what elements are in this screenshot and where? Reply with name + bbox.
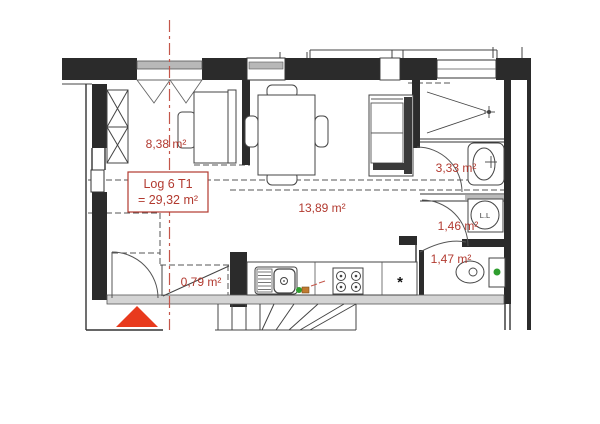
window-2-glazing: [249, 62, 283, 69]
room-label-laundry: 1,46 m²: [438, 219, 479, 233]
casement-swing-left: [137, 80, 170, 103]
sofa-back: [404, 97, 412, 174]
sink-drainer: [257, 269, 272, 292]
tap-fitting: [302, 287, 309, 293]
chair-right: [315, 116, 328, 147]
kitchen: *: [247, 262, 417, 295]
room-label-living: 13,89 m²: [298, 201, 345, 215]
shelf: [228, 90, 236, 163]
floor-plan-page: * L.L Log 6 T1 = 29,32 m² 8,38 m² 1: [0, 0, 600, 424]
room-label-entry-closet: 0,79 m²: [181, 275, 222, 289]
dining-table: [258, 95, 315, 175]
chair-left: [245, 116, 258, 147]
unit-label-line2: = 29,32 m²: [138, 193, 198, 207]
desk: [194, 92, 228, 163]
entrance-arrow: [116, 306, 158, 327]
sofa-cushion: [371, 133, 403, 163]
washing-machine-label: L.L: [480, 211, 490, 220]
dining-set: [245, 85, 328, 185]
unit-label-line1: Log 6 T1: [143, 177, 192, 191]
sofa-armrest: [373, 163, 405, 170]
entry-door-arc: [112, 252, 158, 298]
sofa: [369, 95, 413, 176]
stairs: [215, 304, 356, 330]
bedroom-furniture: [107, 90, 236, 163]
bottom-wall-band: [107, 295, 504, 304]
shower-drain: [487, 110, 490, 113]
wall-opening: [380, 58, 400, 80]
toilet-green-dot: [494, 269, 501, 276]
shower: [427, 92, 495, 133]
room-label-bathroom: 3,33 m²: [436, 161, 477, 175]
tap-green-dot: [296, 287, 302, 293]
service-door: [91, 170, 104, 192]
floor-plan: * L.L Log 6 T1 = 29,32 m² 8,38 m² 1: [0, 0, 600, 424]
sofa-cushion: [371, 103, 403, 133]
fridge-symbol: *: [397, 274, 403, 291]
wc-door-arc: [420, 241, 466, 252]
room-label-wc: 1,47 m²: [431, 252, 472, 266]
room-label-bedroom: 8,38 m²: [146, 137, 187, 151]
